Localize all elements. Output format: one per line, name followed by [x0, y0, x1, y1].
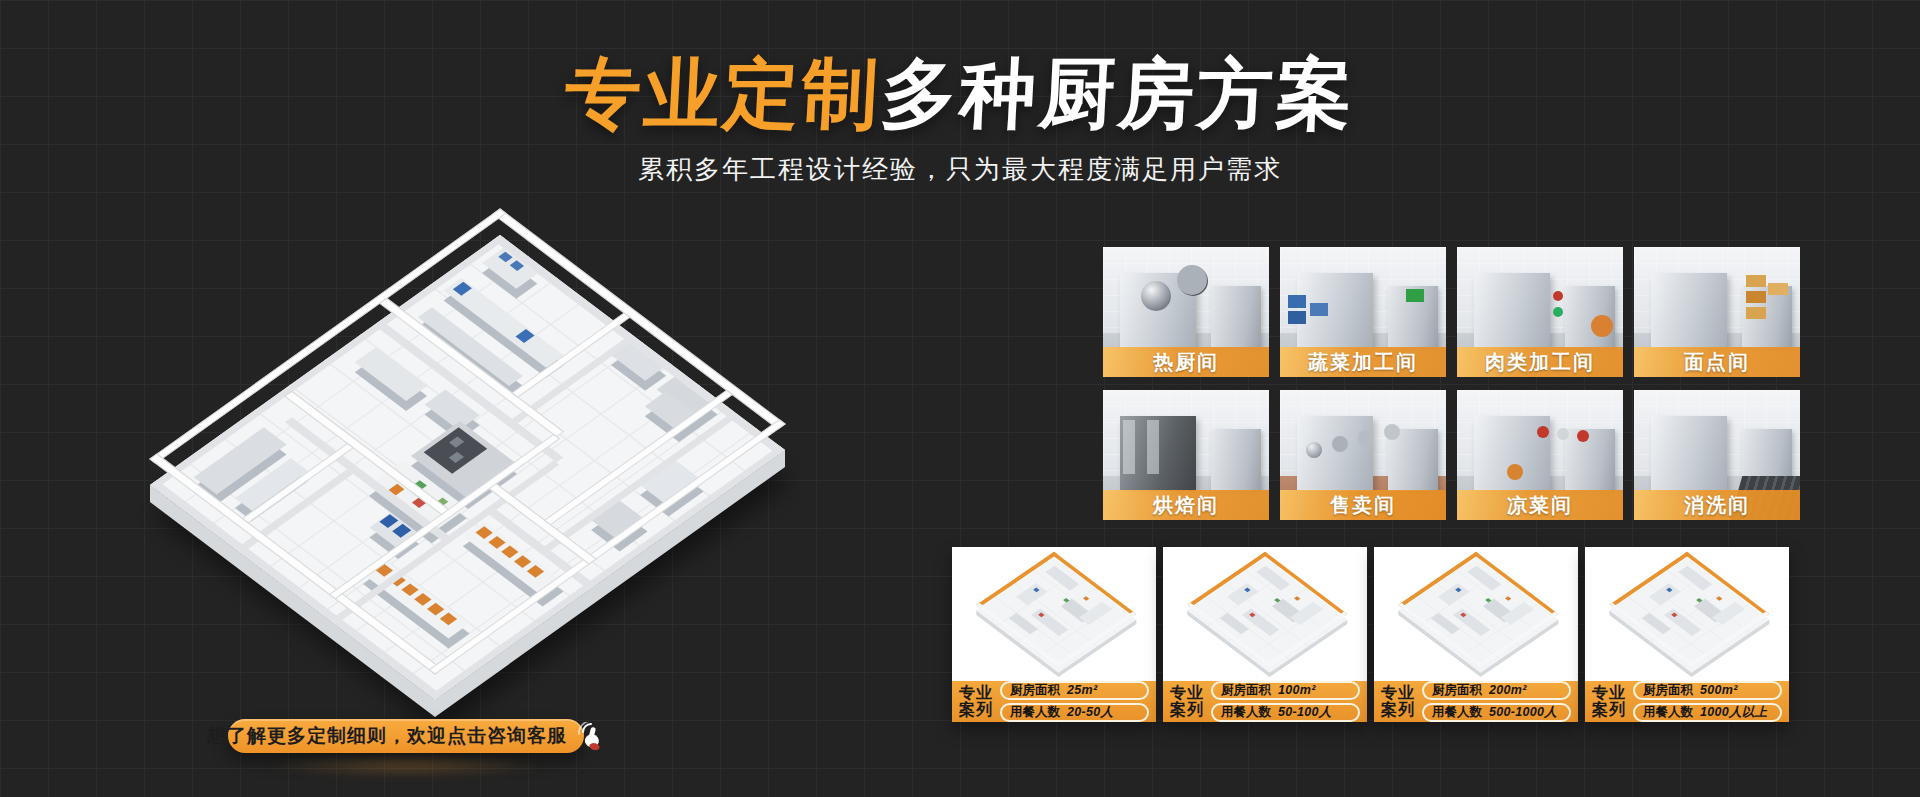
- case-photo: [952, 547, 1156, 681]
- area-pill: 厨房面积500m²: [1633, 681, 1782, 700]
- diners-pill: 用餐人数500-1000人: [1422, 703, 1571, 722]
- mini-floorplan-icon: [1380, 550, 1572, 678]
- click-hand-icon: [575, 722, 605, 750]
- area-pill: 厨房面积25m²: [1000, 681, 1149, 700]
- mini-floorplan-icon: [1169, 550, 1361, 678]
- room-card-baking[interactable]: 烘焙间: [1103, 390, 1269, 520]
- diners-pill: 用餐人数20-50人: [1000, 703, 1149, 722]
- case-card-200m2[interactable]: 专业案列 厨房面积200m² 用餐人数500-1000人: [1374, 547, 1578, 722]
- case-strip: 专业案列 厨房面积100m² 用餐人数50-100人: [1163, 681, 1367, 722]
- page-title-accent: 专业定制: [563, 51, 883, 136]
- room-card-vegetable-processing[interactable]: 蔬菜加工间: [1280, 247, 1446, 377]
- room-label: 热厨间: [1103, 347, 1269, 377]
- case-badge: 专业案列: [1381, 685, 1415, 719]
- area-pill: 厨房面积100m²: [1211, 681, 1360, 700]
- mini-floorplan-icon: [958, 550, 1150, 678]
- diners-pill: 用餐人数1000人以上: [1633, 703, 1782, 722]
- case-badge: 专业案列: [1170, 685, 1204, 719]
- diners-pill: 用餐人数50-100人: [1211, 703, 1360, 722]
- room-card-dishwashing[interactable]: 消洗间: [1634, 390, 1800, 520]
- room-label: 面点间: [1634, 347, 1800, 377]
- case-photo: [1374, 547, 1578, 681]
- case-badge: 专业案列: [959, 685, 993, 719]
- hero-section: 专业定制多种厨房方案 累积多年工程设计经验，只为最大程度满足用户需求: [0, 52, 1920, 187]
- case-card-500m2[interactable]: 专业案列 厨房面积500m² 用餐人数1000人以上: [1585, 547, 1789, 722]
- room-label: 肉类加工间: [1457, 347, 1623, 377]
- room-card-hot-kitchen[interactable]: 热厨间: [1103, 247, 1269, 377]
- room-label: 蔬菜加工间: [1280, 347, 1446, 377]
- room-label: 凉菜间: [1457, 490, 1623, 520]
- area-pill: 厨房面积200m²: [1422, 681, 1571, 700]
- room-card-cold-dish[interactable]: 凉菜间: [1457, 390, 1623, 520]
- case-photo: [1585, 547, 1789, 681]
- kitchen-floorplan-illustration: [130, 190, 800, 735]
- case-strip: 专业案列 厨房面积200m² 用餐人数500-1000人: [1374, 681, 1578, 722]
- case-card-100m2[interactable]: 专业案列 厨房面积100m² 用餐人数50-100人: [1163, 547, 1367, 722]
- room-label: 烘焙间: [1103, 490, 1269, 520]
- banner-stage: 专业定制多种厨房方案 累积多年工程设计经验，只为最大程度满足用户需求: [0, 0, 1920, 797]
- case-photo: [1163, 547, 1367, 681]
- page-subtitle: 累积多年工程设计经验，只为最大程度满足用户需求: [0, 152, 1920, 187]
- page-title-rest: 多种厨房方案: [879, 51, 1357, 136]
- room-card-selling[interactable]: 售卖间: [1280, 390, 1446, 520]
- room-cards-grid: 热厨间 蔬菜加工间 肉类加工间 面点间 烘焙间 售卖间 凉菜间 消洗间: [1103, 247, 1800, 520]
- consult-cta-label: 想了解更多定制细则，欢迎点击咨询客服: [207, 723, 567, 749]
- room-card-meat-processing[interactable]: 肉类加工间: [1457, 247, 1623, 377]
- page-title: 专业定制多种厨房方案: [0, 52, 1920, 136]
- case-badge: 专业案列: [1592, 685, 1626, 719]
- case-cards-row: 专业案列 厨房面积25m² 用餐人数20-50人 专业案列 厨房面积100m² …: [952, 547, 1789, 722]
- mini-floorplan-icon: [1591, 550, 1783, 678]
- room-label: 消洗间: [1634, 490, 1800, 520]
- case-strip: 专业案列 厨房面积500m² 用餐人数1000人以上: [1585, 681, 1789, 722]
- consult-cta-button[interactable]: 想了解更多定制细则，欢迎点击咨询客服: [228, 719, 584, 753]
- case-card-25m2[interactable]: 专业案列 厨房面积25m² 用餐人数20-50人: [952, 547, 1156, 722]
- case-strip: 专业案列 厨房面积25m² 用餐人数20-50人: [952, 681, 1156, 722]
- room-label: 售卖间: [1280, 490, 1446, 520]
- room-card-pastry[interactable]: 面点间: [1634, 247, 1800, 377]
